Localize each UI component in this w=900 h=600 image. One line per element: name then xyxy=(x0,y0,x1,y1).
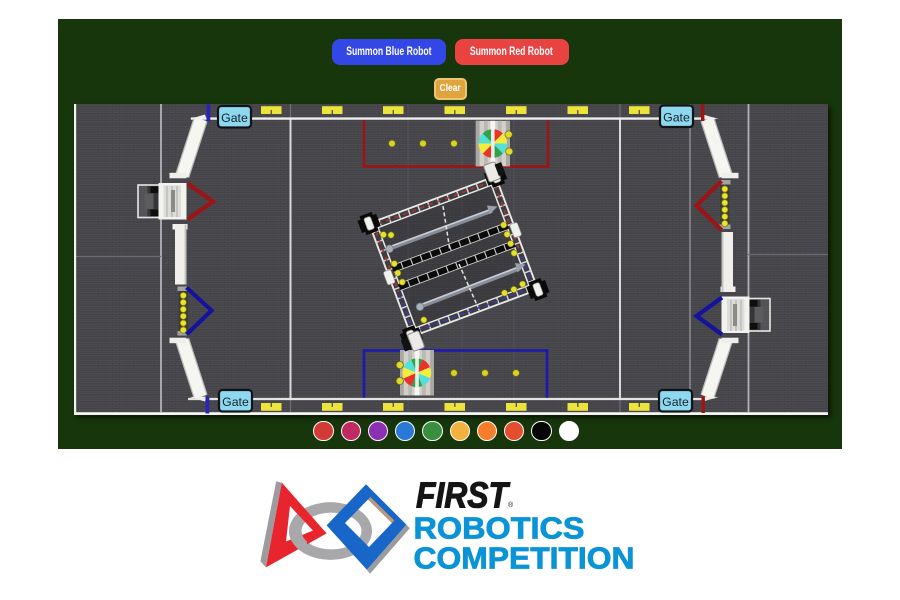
svg-text:Gate: Gate xyxy=(662,395,689,409)
svg-text:®: ® xyxy=(508,501,514,509)
svg-text:COMPETITION: COMPETITION xyxy=(414,541,635,576)
svg-text:Gate: Gate xyxy=(221,111,248,125)
svg-text:Gate: Gate xyxy=(663,111,690,125)
svg-text:Gate: Gate xyxy=(222,395,249,409)
svg-text:FIRST: FIRST xyxy=(416,475,510,516)
